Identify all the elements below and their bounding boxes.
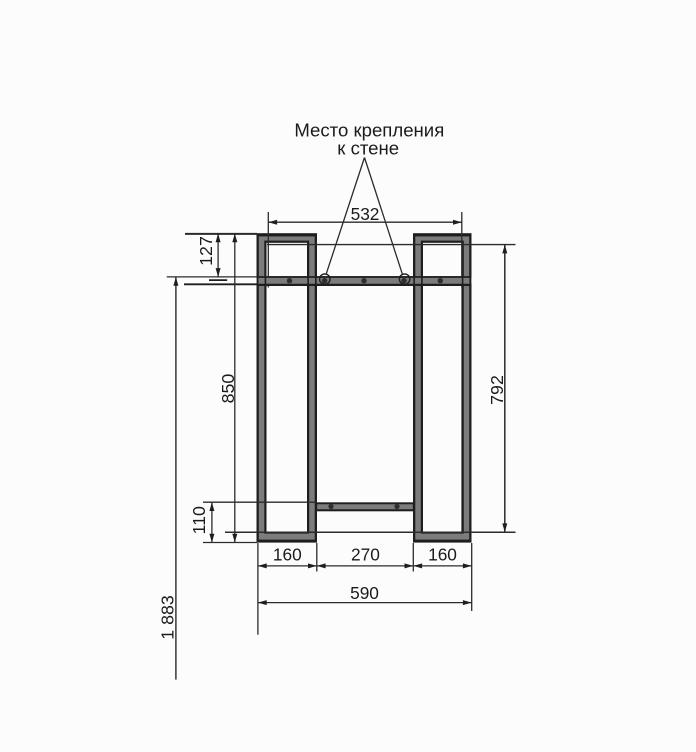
svg-text:110: 110 xyxy=(189,506,209,534)
svg-text:160: 160 xyxy=(428,545,457,565)
svg-text:792: 792 xyxy=(487,375,507,405)
svg-text:160: 160 xyxy=(273,545,302,565)
svg-text:270: 270 xyxy=(351,545,380,565)
svg-text:532: 532 xyxy=(351,204,380,224)
svg-text:к стене: к стене xyxy=(337,138,399,159)
svg-text:850: 850 xyxy=(218,374,238,404)
svg-text:590: 590 xyxy=(350,583,379,603)
svg-text:1 883: 1 883 xyxy=(158,595,178,640)
svg-text:127: 127 xyxy=(196,236,216,266)
